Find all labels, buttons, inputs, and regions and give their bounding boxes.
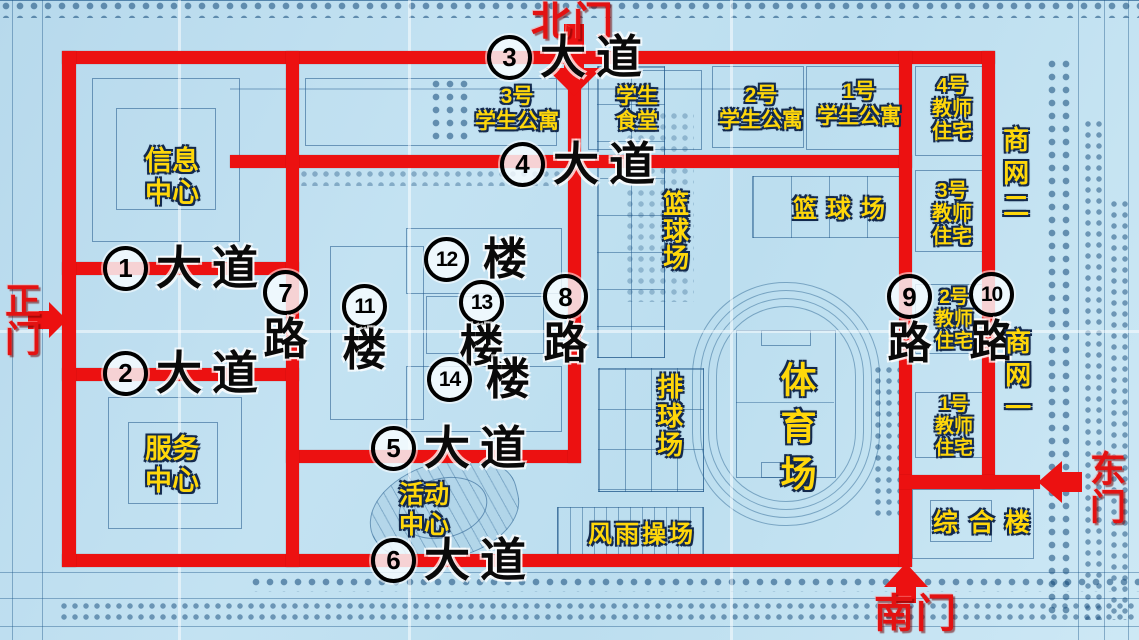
stadium-label: 体育场 [774,361,816,502]
avenue-6-number: 6 [371,538,416,583]
teacher-house-3-line1: 3号 [908,180,996,203]
street-line [1128,0,1129,640]
east-gate-label: 东门 [1087,450,1123,526]
building-11-number: 11 [342,284,387,329]
basketball-court-left-label: 篮球场 [659,190,690,271]
avenue-5-name: 大道 [424,425,536,471]
avenue-4-label: 4 大道 [500,141,665,187]
avenue-2-number: 2 [103,351,148,396]
shop-street-1-label: 商网一 [1001,328,1032,427]
teacher-house-2-line3: 住宅 [912,331,996,353]
avenue-6-name: 大道 [424,537,536,583]
rain-playground-label: 风雨操场 [588,521,696,549]
avenue-1-name: 大道 [156,245,268,291]
building-14-name: 楼 [486,358,530,402]
avenue-1-number: 1 [103,246,148,291]
student-canteen-line2: 食堂 [585,110,689,135]
avenue-3-number: 3 [487,35,532,80]
teacher-house-2-line1: 2号 [912,287,996,309]
avenue-5-label: 5 大道 [371,425,536,471]
road-8-name: 路 [544,322,588,366]
complex-building-label: 综合楼 [933,509,1041,539]
building-11-name: 楼 [343,329,387,373]
road-7-label: 7 路 [263,270,308,362]
teacher-house-4-line3: 住宅 [908,121,996,144]
tree-cluster [874,366,900,521]
student-apartment-2-label: 2号 学生公寓 [708,84,814,134]
teacher-house-1-line1: 1号 [912,394,996,416]
student-canteen-line1: 学生 [585,85,689,110]
teacher-house-1-line3: 住宅 [912,438,996,460]
avenue-4-name: 大道 [553,141,665,187]
teacher-house-2-line2: 教师 [912,309,996,331]
street-line [0,626,1139,627]
building-11-label: 11 楼 [342,284,387,373]
student-apartment-2-line1: 2号 [708,84,814,109]
avenue-4-number: 4 [500,142,545,187]
tree-row [60,602,1139,620]
student-apartment-1-line1: 1号 [806,80,912,105]
avenue-3-label: 3 大道 [487,34,652,80]
campus-map: 北门 正门 东门 南门 1 大道 2 大道 3 大道 4 大道 5 大道 6 大… [0,0,1139,640]
info-center-line1: 信息 [116,146,228,178]
teacher-house-3-line3: 住宅 [908,226,996,249]
teacher-house-1-line2: 教师 [912,416,996,438]
student-apartment-3-label: 3号 学生公寓 [462,85,572,135]
paper-fold [178,0,181,640]
road-8-number: 8 [543,274,588,319]
avenue-2-label: 2 大道 [103,350,268,396]
south-gate-label: 南门 [874,594,958,634]
road-east-gate [899,475,1040,489]
building-12-name: 楼 [483,238,527,282]
teacher-house-1-label: 1号 教师 住宅 [912,394,996,460]
student-apartment-1-line2: 学生公寓 [806,105,912,130]
tree-column [1110,200,1128,620]
teacher-house-2-label: 2号 教师 住宅 [912,287,996,353]
road-8-label: 8 路 [543,274,588,366]
building-13-number: 13 [459,280,504,325]
teacher-house-4-label: 4号 教师 住宅 [908,75,996,144]
main-gate-label: 正门 [2,282,38,358]
activity-center-label: 活动 中心 [368,481,480,540]
shop-street-2-label: 商网二 [999,126,1030,225]
avenue-2-name: 大道 [156,350,268,396]
tree-column [1084,120,1104,620]
east-gate-arrow-icon [1062,472,1082,492]
building-12-number: 12 [424,237,469,282]
street-line [1104,0,1105,640]
street-line [1078,0,1079,640]
student-apartment-3-line1: 3号 [462,85,572,110]
info-center-label: 信息 中心 [116,146,228,210]
student-canteen-label: 学生 食堂 [585,85,689,135]
activity-center-line2: 中心 [368,511,480,541]
teacher-house-3-line2: 教师 [908,203,996,226]
south-gate-arrowhead-icon [884,563,928,587]
tree-column [1046,58,1076,618]
east-gate-arrowhead-icon [1038,461,1062,503]
teacher-house-4-line2: 教师 [908,98,996,121]
student-apartment-3-line2: 学生公寓 [462,110,572,135]
volleyball-courts [598,368,704,492]
building-12-label: 12 楼 [424,237,527,282]
road-7-name: 路 [264,318,308,362]
teacher-house-4-line1: 4号 [908,75,996,98]
street-line [0,598,1139,599]
building-14-label: 14 楼 [427,357,530,402]
service-center-label: 服务 中心 [116,434,228,498]
student-apartment-1-label: 1号 学生公寓 [806,80,912,130]
avenue-3-name: 大道 [540,34,652,80]
volleyball-court-label: 排球场 [653,373,684,460]
teacher-house-3-label: 3号 教师 住宅 [908,180,996,249]
info-center-line2: 中心 [116,178,228,210]
basketball-court-right-label: 篮球场 [793,196,895,224]
building-14-number: 14 [427,357,472,402]
activity-center-line1: 活动 [368,481,480,511]
main-gate-arrowhead-icon [49,302,67,338]
service-center-line2: 中心 [116,466,228,498]
street-line [0,572,1139,573]
avenue-1-label: 1 大道 [103,245,268,291]
student-apartment-2-line2: 学生公寓 [708,109,814,134]
road-7-number: 7 [263,270,308,315]
service-center-line1: 服务 [116,434,228,466]
avenue-6-label: 6 大道 [371,537,536,583]
avenue-5-number: 5 [371,426,416,471]
